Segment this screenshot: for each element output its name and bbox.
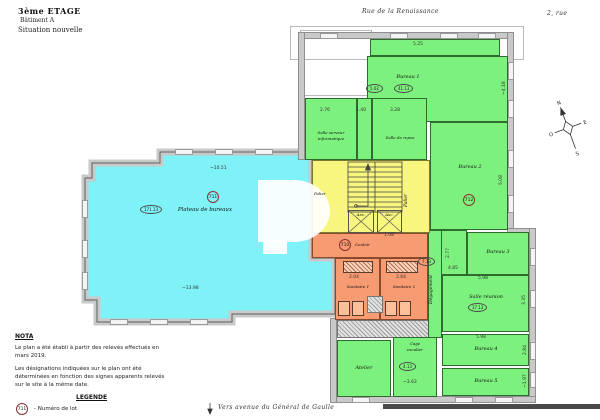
area-oval-plateau: 171.13	[140, 205, 162, 214]
direction-arrow-icon	[208, 403, 212, 414]
nota-block: NOTA Le plan a été établi à partir des r…	[15, 333, 167, 393]
salle-serveur-label-1: Salle serveur	[306, 130, 356, 135]
building-label: Bâtiment A	[20, 17, 54, 24]
palier-left-label: Palier	[314, 191, 326, 196]
bureau2-label: Bureau 2	[446, 164, 494, 170]
cage-escalier-label-2: escalier	[395, 347, 435, 352]
window-marker	[478, 33, 496, 39]
wc-stall	[385, 301, 397, 316]
window-marker	[320, 33, 338, 39]
compass-e-label: E	[583, 119, 588, 126]
street-top-right-label: 2, rue	[547, 10, 567, 17]
dim-label: ~4.18	[503, 81, 508, 95]
dim-label: ~10.51	[210, 167, 227, 172]
dim-label: ~3.63	[403, 381, 417, 386]
dim-label: 1.40	[356, 109, 366, 114]
dim-label: 5.08	[500, 175, 505, 185]
wc-stall	[352, 301, 364, 316]
window-marker	[508, 150, 514, 168]
window-marker	[440, 33, 458, 39]
wall-segment	[330, 318, 337, 403]
palier-right-label: Palier	[405, 175, 410, 207]
window-marker	[190, 319, 208, 325]
atelier-label: Atelier	[344, 365, 384, 371]
compass-n-label: N	[556, 100, 562, 107]
ascenseur2-label: Asc.	[381, 212, 398, 217]
duct-block	[367, 296, 383, 313]
salle-reunion-label: Salle réunion	[462, 294, 510, 300]
room-salle-reunion	[442, 275, 529, 332]
logo-watermark	[258, 180, 330, 242]
nota-paragraph-1: Le plan a été établi à partir des relevé…	[15, 344, 167, 361]
dim-label: 5.98	[476, 336, 486, 341]
window-marker	[530, 248, 536, 266]
dim-label: 2.76	[320, 109, 330, 114]
window-marker	[495, 397, 513, 403]
terrace-outline	[300, 30, 372, 96]
wc-stall	[338, 301, 350, 316]
cage-escalier-label-1: Cage	[395, 341, 435, 346]
dim-label: 2.04	[349, 276, 359, 281]
lot-tag-bureau2: 712	[463, 194, 475, 206]
window-marker	[215, 149, 233, 155]
bureau1-label: Bureau 1	[378, 74, 438, 80]
window-marker	[530, 290, 536, 308]
window-marker	[390, 33, 408, 39]
bureau3-label: Bureau 3	[478, 249, 518, 255]
room-bureau-2	[430, 122, 508, 230]
dim-label: 3.28	[390, 109, 400, 114]
compass-o-label: O	[549, 132, 555, 139]
dim-label: 5.98	[478, 277, 488, 282]
room-couloir	[312, 233, 428, 258]
dim-label: ~1.97	[524, 374, 529, 388]
window-marker	[255, 149, 273, 155]
lot-tag-couloir: 710	[339, 239, 351, 251]
street-top-label: Rue de la Renaissance	[362, 8, 439, 15]
sink-counter	[343, 261, 373, 273]
plan-status-label: Situation nouvelle	[18, 26, 82, 34]
legend-lot-tag: 711	[16, 403, 28, 415]
wall-segment	[298, 32, 305, 160]
window-marker	[82, 272, 88, 290]
window-marker	[82, 240, 88, 258]
compass-rose-icon: N S E O	[539, 94, 597, 164]
room-balcony-strip	[370, 39, 500, 56]
window-marker	[110, 319, 128, 325]
window-marker	[175, 149, 193, 155]
logo-watermark	[263, 240, 287, 254]
sanitaire2-label: Sanitaire 2	[381, 284, 427, 289]
sink-counter	[386, 261, 418, 273]
dim-label: 1.08	[384, 234, 394, 239]
nota-paragraph-2: Les désignations indiquées sur le plan o…	[15, 365, 167, 390]
lot-tag-plateau: 711	[207, 191, 219, 203]
window-marker	[455, 397, 473, 403]
salle-serveur-label-2: informatique	[306, 136, 356, 141]
dim-label: ~13.98	[182, 287, 199, 292]
dim-label: 2.84	[524, 345, 529, 355]
hatched-wall	[337, 320, 440, 338]
nota-heading: NOTA	[15, 333, 167, 340]
dim-label: 2.77	[447, 248, 452, 258]
window-marker	[530, 342, 536, 360]
ascenseur1-label: Asc.	[352, 212, 370, 217]
dim-label: 4.85	[448, 267, 458, 272]
dim-label: 3.35	[523, 295, 528, 305]
sheet-border-bar	[383, 404, 600, 409]
plateau-label: Plateau de bureaux	[165, 207, 245, 214]
floor-plan-sheet: 3ème ETAGE Bâtiment A Situation nouvelle…	[0, 0, 600, 420]
couloir-label: Couloir	[355, 242, 370, 247]
sanitaire1-label: Sanitaire 1	[336, 284, 380, 289]
bureau5-label: Bureau 5	[462, 378, 510, 384]
window-marker	[508, 62, 514, 80]
window-marker	[508, 195, 514, 213]
window-marker	[150, 319, 168, 325]
wc-stall	[399, 301, 411, 316]
window-marker	[530, 372, 536, 388]
dim-label: 2.64	[396, 276, 406, 281]
window-marker	[508, 100, 514, 118]
legend-heading: LEGENDE	[76, 394, 107, 401]
compass-s-label: S	[575, 151, 580, 158]
legend-description: - Numéro de lot	[34, 406, 77, 412]
window-marker	[352, 397, 370, 403]
salle-repos-label: Salle de repos	[374, 135, 426, 140]
degagement-label: Dégagement	[430, 244, 435, 304]
dim-label: 5.25	[413, 43, 423, 48]
room-salle-serveur	[305, 98, 357, 160]
page-title: 3ème ETAGE	[18, 6, 81, 16]
street-bottom-label: Vers avenue du Général de Gaulle	[218, 404, 334, 411]
window-marker	[82, 200, 88, 218]
bureau4-label: Bureau 4	[462, 346, 510, 352]
